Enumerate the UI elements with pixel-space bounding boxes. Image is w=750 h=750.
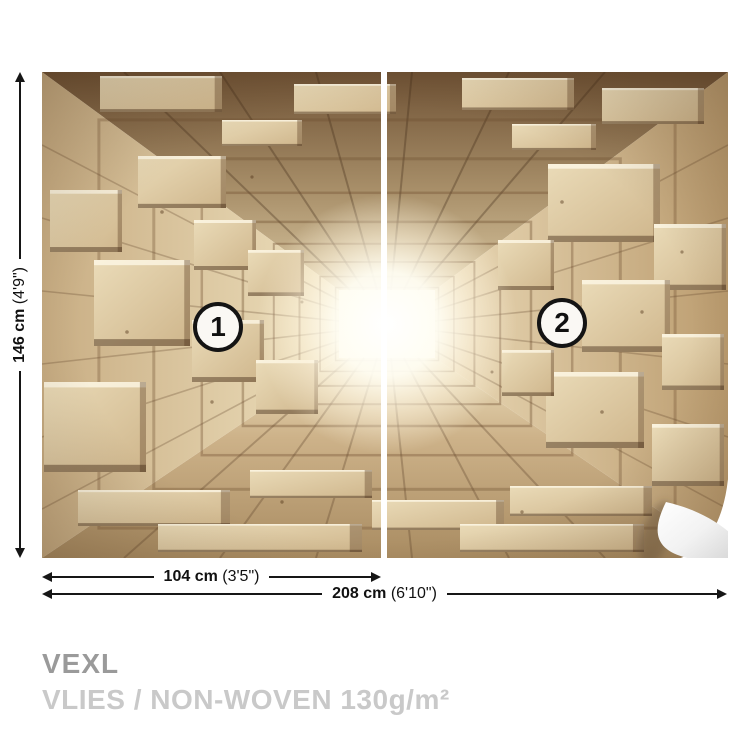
dimension-line [19,82,21,259]
total-width-label: 208 cm (6'10") [322,586,447,602]
panel-2-badge: 2 [537,298,587,348]
panel-2-number: 2 [554,307,570,339]
dimension-line [447,593,717,595]
dimension-line [269,576,371,578]
material-spec: VLIES / NON-WOVEN 130g/m² [42,684,450,716]
mural: 1 2 [42,72,728,558]
panel-1-badge: 1 [193,302,243,352]
height-dimension: 146 cm (4'9") [3,72,37,558]
arrow-left-icon [42,572,52,582]
arrow-right-icon [371,572,381,582]
dimension-line [52,593,322,595]
arrow-up-icon [15,72,25,82]
panel-divider [381,72,387,558]
panel-width-label: 104 cm (3'5") [154,569,270,585]
brand-name: VEXL [42,648,119,680]
arrow-right-icon [717,589,727,599]
height-dimension-label: 146 cm (4'9") [12,259,28,371]
panel-width-dimension: 104 cm (3'5") [42,569,381,585]
arrow-left-icon [42,589,52,599]
arrow-down-icon [15,548,25,558]
dimension-line [52,576,154,578]
total-width-dimension: 208 cm (6'10") [42,586,727,602]
product-mockup: 1 2 146 cm (4'9") 104 cm (3'5") 208 cm (… [0,0,750,750]
panel-1-number: 1 [210,311,226,343]
dimension-line [19,371,21,548]
